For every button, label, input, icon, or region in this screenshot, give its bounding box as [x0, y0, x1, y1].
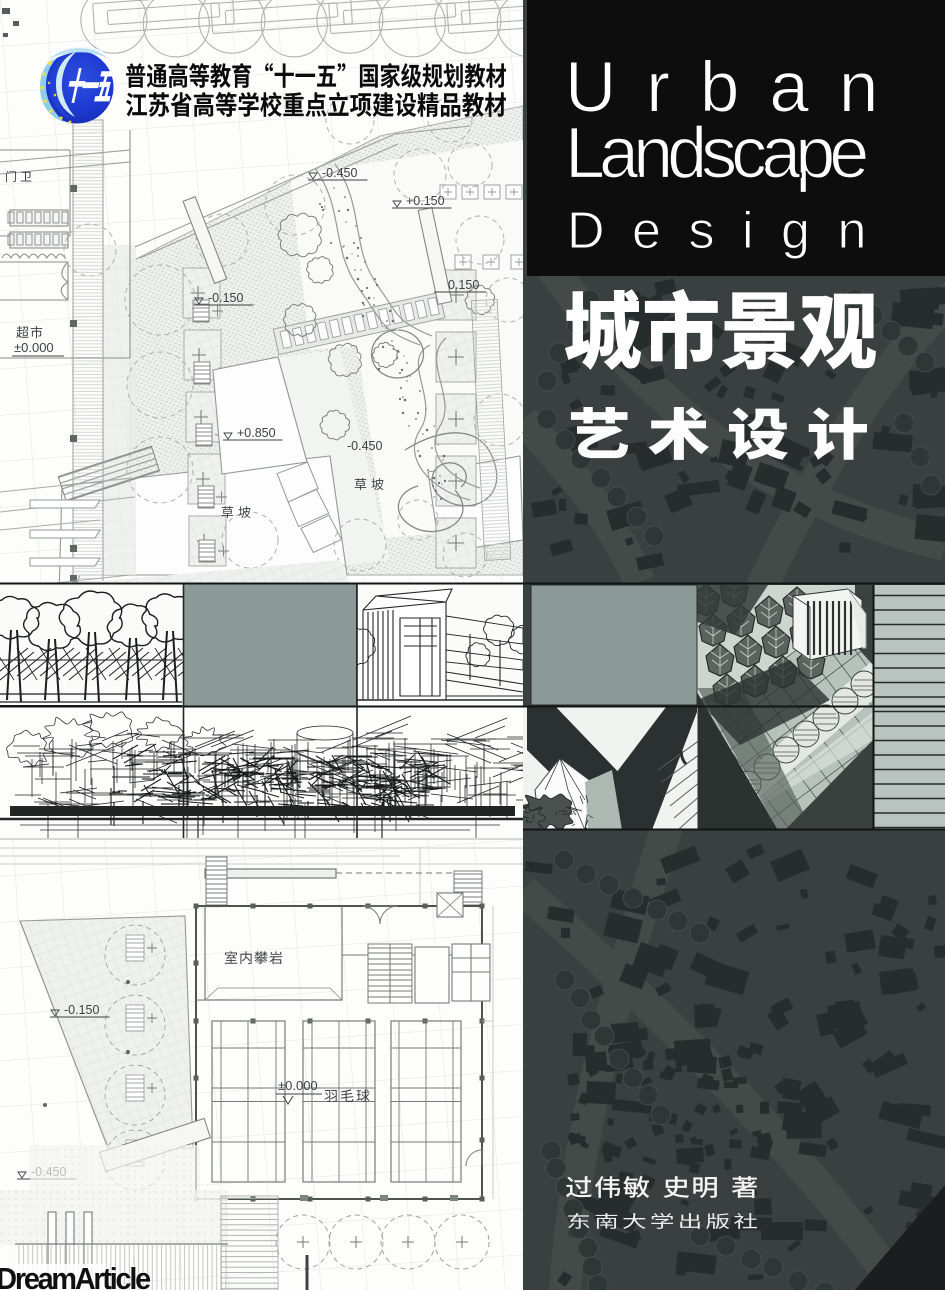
svg-text:-0.450: -0.450: [322, 166, 357, 180]
svg-text:-0.450: -0.450: [347, 439, 382, 453]
svg-text:Landscape: Landscape: [565, 114, 866, 194]
svg-text:DreamArticle: DreamArticle: [0, 1262, 151, 1290]
svg-text:0.150: 0.150: [448, 278, 479, 292]
svg-text:+0.850: +0.850: [237, 426, 276, 440]
svg-text:-0.150: -0.150: [64, 1003, 99, 1017]
svg-text:±0.000: ±0.000: [278, 1078, 318, 1093]
svg-text:+0.150: +0.150: [406, 194, 445, 208]
svg-text:Design: Design: [567, 202, 894, 260]
svg-text:±0.000: ±0.000: [14, 340, 54, 355]
svg-text:-0.150: -0.150: [208, 291, 243, 305]
